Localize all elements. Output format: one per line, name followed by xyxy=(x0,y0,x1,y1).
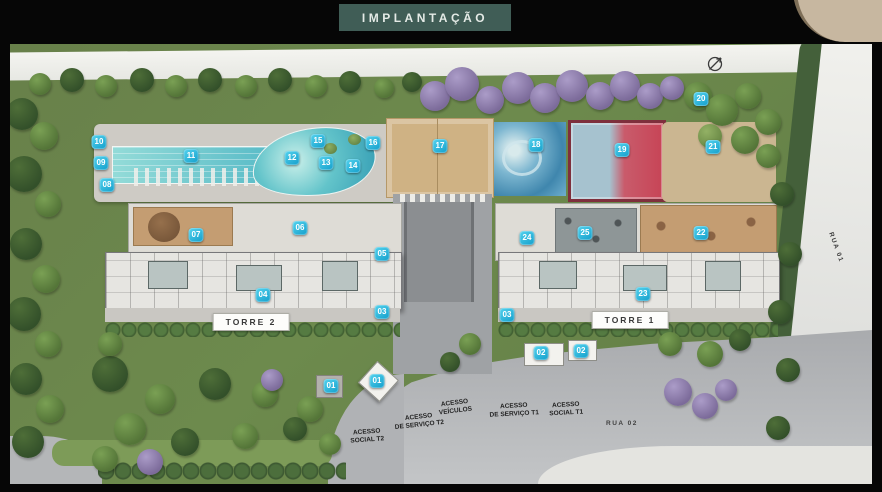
marker-23[interactable]: 23 xyxy=(636,287,651,301)
marker-03[interactable]: 03 xyxy=(375,305,390,319)
marker-14[interactable]: 14 xyxy=(346,159,361,173)
access-label: ACESSOSOCIAL T1 xyxy=(549,401,584,418)
tree xyxy=(60,68,84,92)
marker-11[interactable]: 11 xyxy=(184,149,199,163)
tree xyxy=(776,358,800,382)
tree xyxy=(130,68,154,92)
purple-tree xyxy=(261,369,283,391)
tree xyxy=(755,109,781,135)
marker-06[interactable]: 06 xyxy=(293,221,308,235)
marker-02[interactable]: 02 xyxy=(574,344,589,358)
marker-25[interactable]: 25 xyxy=(578,226,593,240)
tree xyxy=(440,352,460,372)
sand-court-divider xyxy=(437,118,438,196)
access-label: ACESSOSOCIAL T2 xyxy=(350,427,385,444)
tree xyxy=(32,265,60,293)
tree xyxy=(114,413,146,445)
implantacao-page: { "title": "IMPLANTAÇÃO", "towers": [ {"… xyxy=(0,0,882,492)
tree xyxy=(731,126,759,154)
tree xyxy=(283,417,307,441)
tree xyxy=(374,78,394,98)
torre-2-planter xyxy=(148,212,180,242)
tree xyxy=(10,297,41,331)
sport-court xyxy=(568,120,666,202)
tree xyxy=(706,94,738,126)
sand-court xyxy=(386,118,494,198)
marker-04[interactable]: 04 xyxy=(256,288,271,302)
marker-18[interactable]: 18 xyxy=(529,138,544,152)
tree xyxy=(305,75,327,97)
purple-tree xyxy=(476,86,504,114)
tree xyxy=(29,73,51,95)
tree xyxy=(459,333,481,355)
garage-ramp xyxy=(404,202,474,302)
tree xyxy=(171,428,199,456)
tree xyxy=(10,228,42,260)
tree xyxy=(35,331,61,357)
purple-tree xyxy=(445,67,479,101)
marker-13[interactable]: 13 xyxy=(319,156,334,170)
marker-09[interactable]: 09 xyxy=(94,156,109,170)
tree xyxy=(319,433,341,455)
tree xyxy=(92,356,128,392)
tree xyxy=(768,300,792,324)
tree xyxy=(735,83,761,109)
page-title: IMPLANTAÇÃO xyxy=(339,4,511,31)
tree xyxy=(756,144,780,168)
torre-1-sign: TORRE 1 xyxy=(592,311,669,329)
marker-05[interactable]: 05 xyxy=(375,247,390,261)
site-plan: TORRE 2 TORRE 1 RUA 01 RUA 02 ACESSOVEÍC… xyxy=(10,44,872,484)
tree xyxy=(92,446,118,472)
tree xyxy=(198,68,222,92)
torre-2-sign: TORRE 2 xyxy=(213,313,290,331)
marker-07[interactable]: 07 xyxy=(189,228,204,242)
crosswalk xyxy=(400,194,486,202)
tree xyxy=(766,416,790,440)
marker-16[interactable]: 16 xyxy=(366,136,381,150)
marker-10[interactable]: 10 xyxy=(92,135,107,149)
torre-2-building xyxy=(105,252,402,310)
tree xyxy=(232,423,258,449)
marker-15[interactable]: 15 xyxy=(311,134,326,148)
tree xyxy=(35,191,61,217)
tree xyxy=(95,75,117,97)
tree xyxy=(268,68,292,92)
tree xyxy=(10,363,42,395)
purple-tree xyxy=(556,70,588,102)
road-label-rua-02: RUA 02 xyxy=(606,420,638,427)
torre-1-building xyxy=(498,252,780,310)
marker-03[interactable]: 03 xyxy=(500,308,515,322)
pool-island xyxy=(324,143,337,154)
tree xyxy=(199,368,231,400)
purple-tree xyxy=(664,378,692,406)
marker-19[interactable]: 19 xyxy=(615,143,630,157)
north-arrow-icon xyxy=(704,52,728,81)
tree xyxy=(145,384,175,414)
tree xyxy=(697,341,723,367)
purple-tree xyxy=(715,379,737,401)
tree xyxy=(658,332,682,356)
marker-22[interactable]: 22 xyxy=(694,226,709,240)
marker-08[interactable]: 08 xyxy=(100,178,115,192)
marker-12[interactable]: 12 xyxy=(285,151,300,165)
pool-island xyxy=(348,134,361,145)
tree xyxy=(235,75,257,97)
tree xyxy=(98,332,122,356)
access-label: ACESSODE SERVIÇO T1 xyxy=(489,401,539,419)
hedge xyxy=(98,462,346,480)
marker-02[interactable]: 02 xyxy=(534,346,549,360)
tree xyxy=(12,426,44,458)
tree xyxy=(778,242,802,266)
tree xyxy=(729,329,751,351)
purple-tree xyxy=(660,76,684,100)
marker-01[interactable]: 01 xyxy=(370,374,385,388)
corner-decoration xyxy=(793,0,882,42)
purple-tree xyxy=(692,393,718,419)
tree xyxy=(339,71,361,93)
marker-21[interactable]: 21 xyxy=(706,140,721,154)
tree xyxy=(770,182,794,206)
purple-tree xyxy=(137,449,163,475)
marker-24[interactable]: 24 xyxy=(520,231,535,245)
tree xyxy=(36,395,64,423)
tree xyxy=(10,156,42,192)
marker-20[interactable]: 20 xyxy=(694,92,709,106)
marker-01[interactable]: 01 xyxy=(324,379,339,393)
tree xyxy=(402,72,422,92)
tree xyxy=(165,75,187,97)
purple-tree xyxy=(610,71,640,101)
marker-17[interactable]: 17 xyxy=(433,139,448,153)
tree xyxy=(30,122,58,150)
